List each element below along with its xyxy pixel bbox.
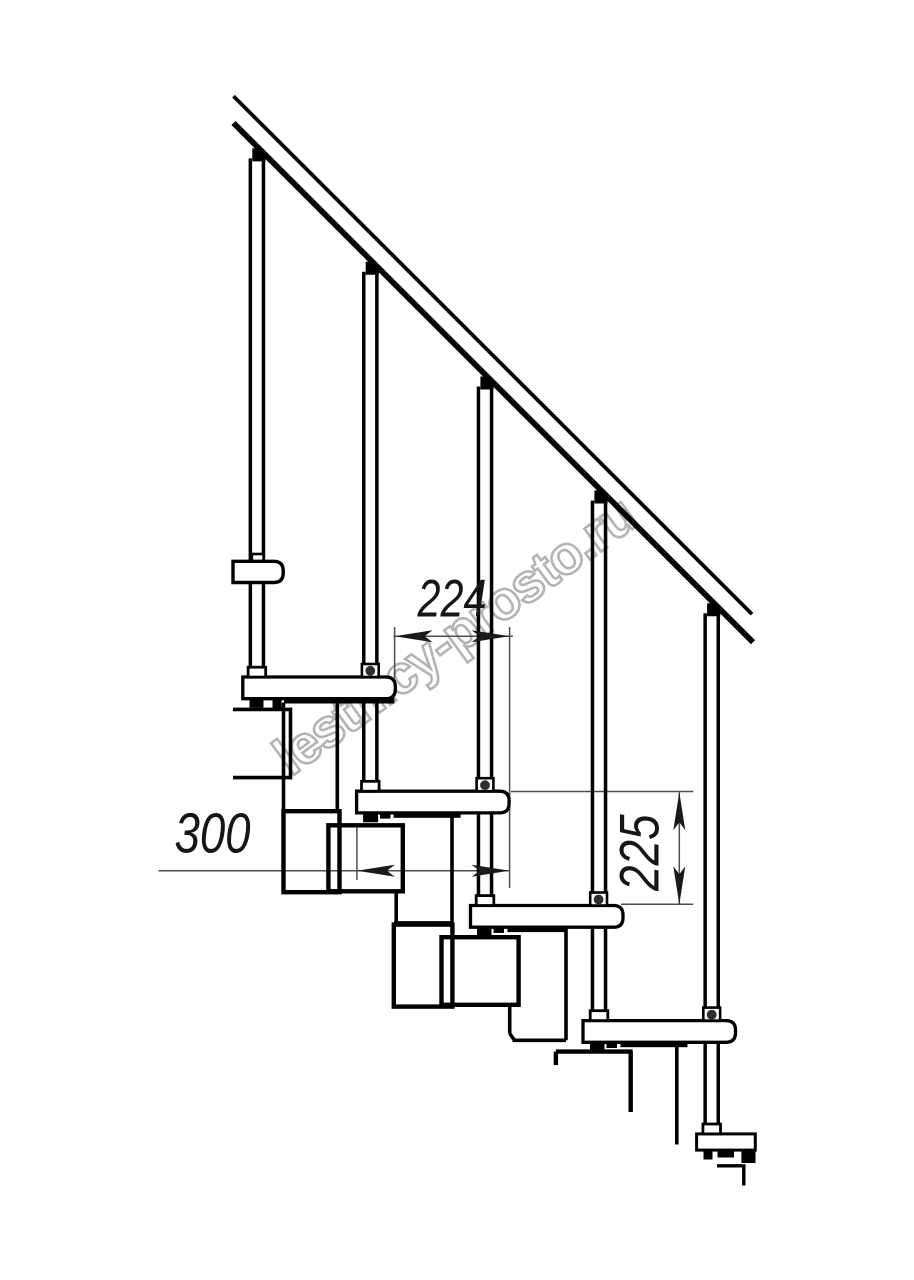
svg-text:224: 224 <box>417 570 487 629</box>
svg-text:300: 300 <box>174 801 250 865</box>
svg-text:225: 225 <box>608 814 670 892</box>
